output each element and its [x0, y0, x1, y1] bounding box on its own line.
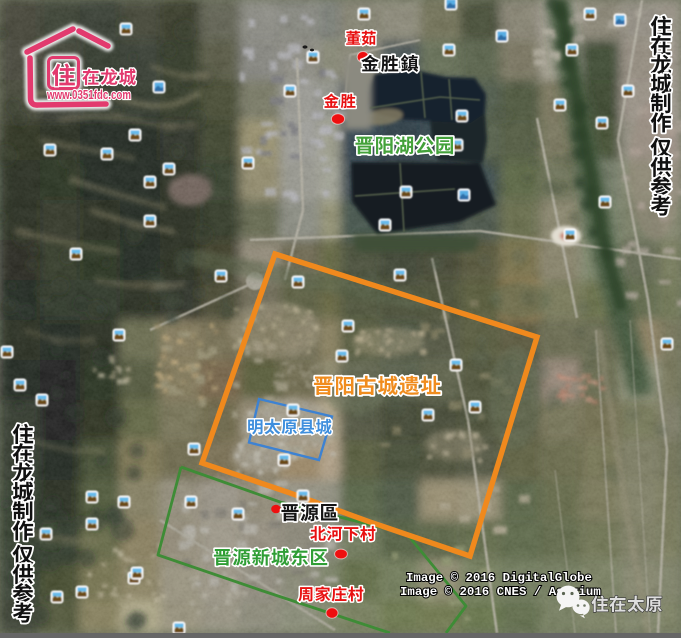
svg-text:Image © 2016 DigitalGlobe: Image © 2016 DigitalGlobe — [406, 571, 592, 585]
svg-text:www.0351fdc.com: www.0351fdc.com — [46, 87, 131, 102]
